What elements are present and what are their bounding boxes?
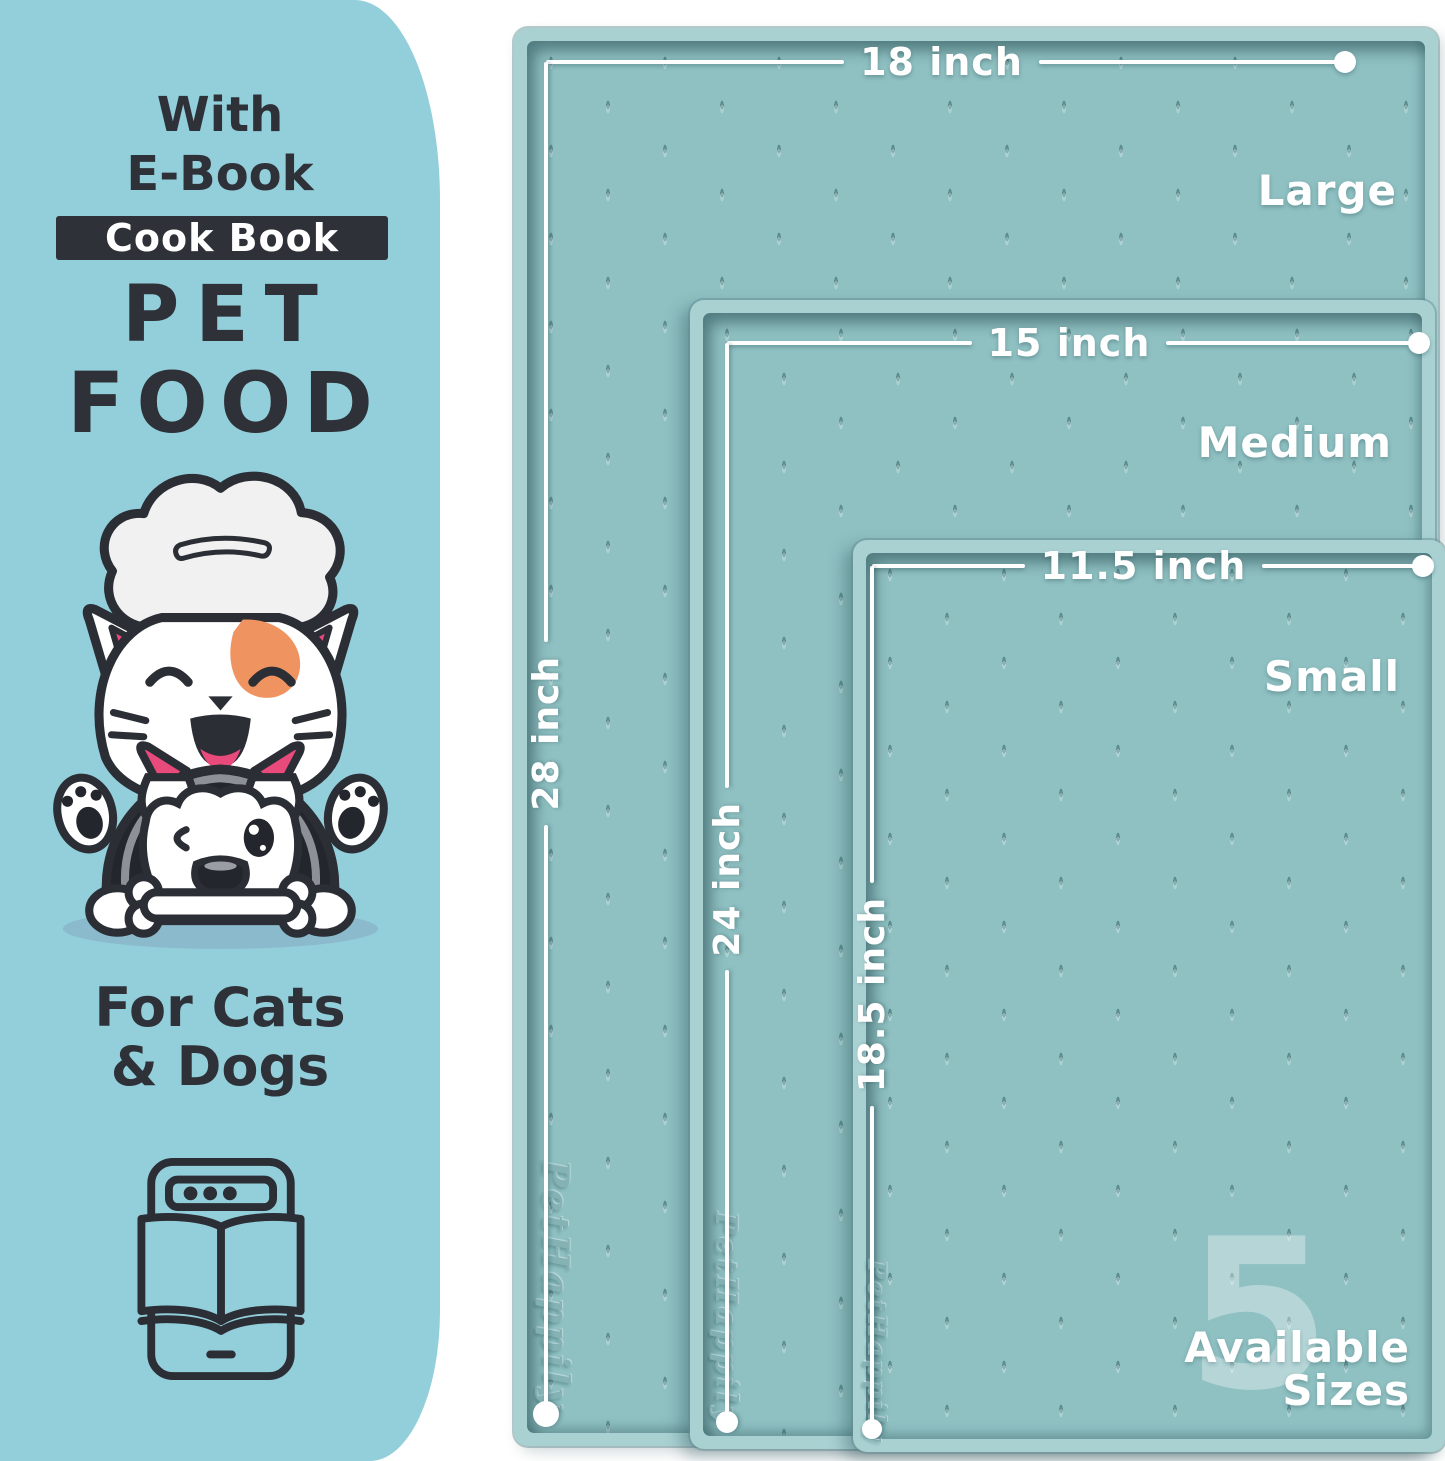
ebook-heading: With E-Book: [0, 86, 440, 203]
measure-endpoint-dot: [1334, 51, 1356, 73]
sizes-label: Available Sizes: [1184, 1326, 1410, 1413]
measure-width-large-label: 18 inch: [844, 40, 1039, 84]
measure-length-large-label: 28 inch: [526, 642, 567, 825]
sizes-label-line1: Available: [1184, 1326, 1410, 1369]
mat-medium-size-label: Medium: [1198, 418, 1392, 467]
measure-length-small: 18.5 inch: [854, 566, 890, 1439]
cat-dog-chef-illustration: [48, 458, 393, 963]
left-info-panel: With E-Book Cook Book PET FOOD: [0, 0, 440, 1461]
measure-length-small-label: 18.5 inch: [852, 883, 893, 1106]
product-title-line1: PET: [0, 270, 440, 360]
measure-length-medium: 24 inch: [709, 343, 745, 1433]
measure-width-small-label: 11.5 inch: [1025, 544, 1263, 588]
product-title-line2: FOOD: [0, 354, 440, 452]
product-infographic: With E-Book Cook Book PET FOOD: [0, 0, 1445, 1461]
ebook-heading-line1: With: [0, 86, 440, 145]
measure-endpoint-dot: [1412, 555, 1434, 577]
measure-endpoint-dot: [1408, 332, 1430, 354]
measure-width-medium: 15 inch: [727, 327, 1430, 359]
measure-width-medium-label: 15 inch: [972, 321, 1167, 365]
mat-small-size-label: Small: [1264, 652, 1400, 701]
measure-endpoint-dot: [533, 1401, 559, 1427]
measure-endpoint-dot: [862, 1419, 882, 1439]
measure-endpoint-dot: [716, 1411, 738, 1433]
cook-book-badge-label: Cook Book: [105, 216, 339, 260]
mat-large-size-label: Large: [1258, 166, 1397, 215]
for-pets-line1: For Cats: [0, 978, 440, 1037]
ebook-icon: [108, 1156, 334, 1382]
ebook-heading-line2: E-Book: [0, 145, 440, 204]
for-pets-line2: & Dogs: [0, 1037, 440, 1096]
measure-length-large: 28 inch: [528, 62, 564, 1427]
sizes-label-line2: Sizes: [1184, 1369, 1410, 1412]
measure-width-small: 11.5 inch: [872, 550, 1434, 582]
available-sizes-badge: 5 Available Sizes: [1100, 1228, 1410, 1428]
measure-length-medium-label: 24 inch: [707, 788, 748, 971]
measure-width-large: 18 inch: [546, 46, 1356, 78]
dog-open-eye: [244, 819, 274, 857]
chef-hat: [104, 476, 340, 628]
for-pets-heading: For Cats & Dogs: [0, 978, 440, 1097]
cook-book-badge: Cook Book: [56, 216, 388, 260]
